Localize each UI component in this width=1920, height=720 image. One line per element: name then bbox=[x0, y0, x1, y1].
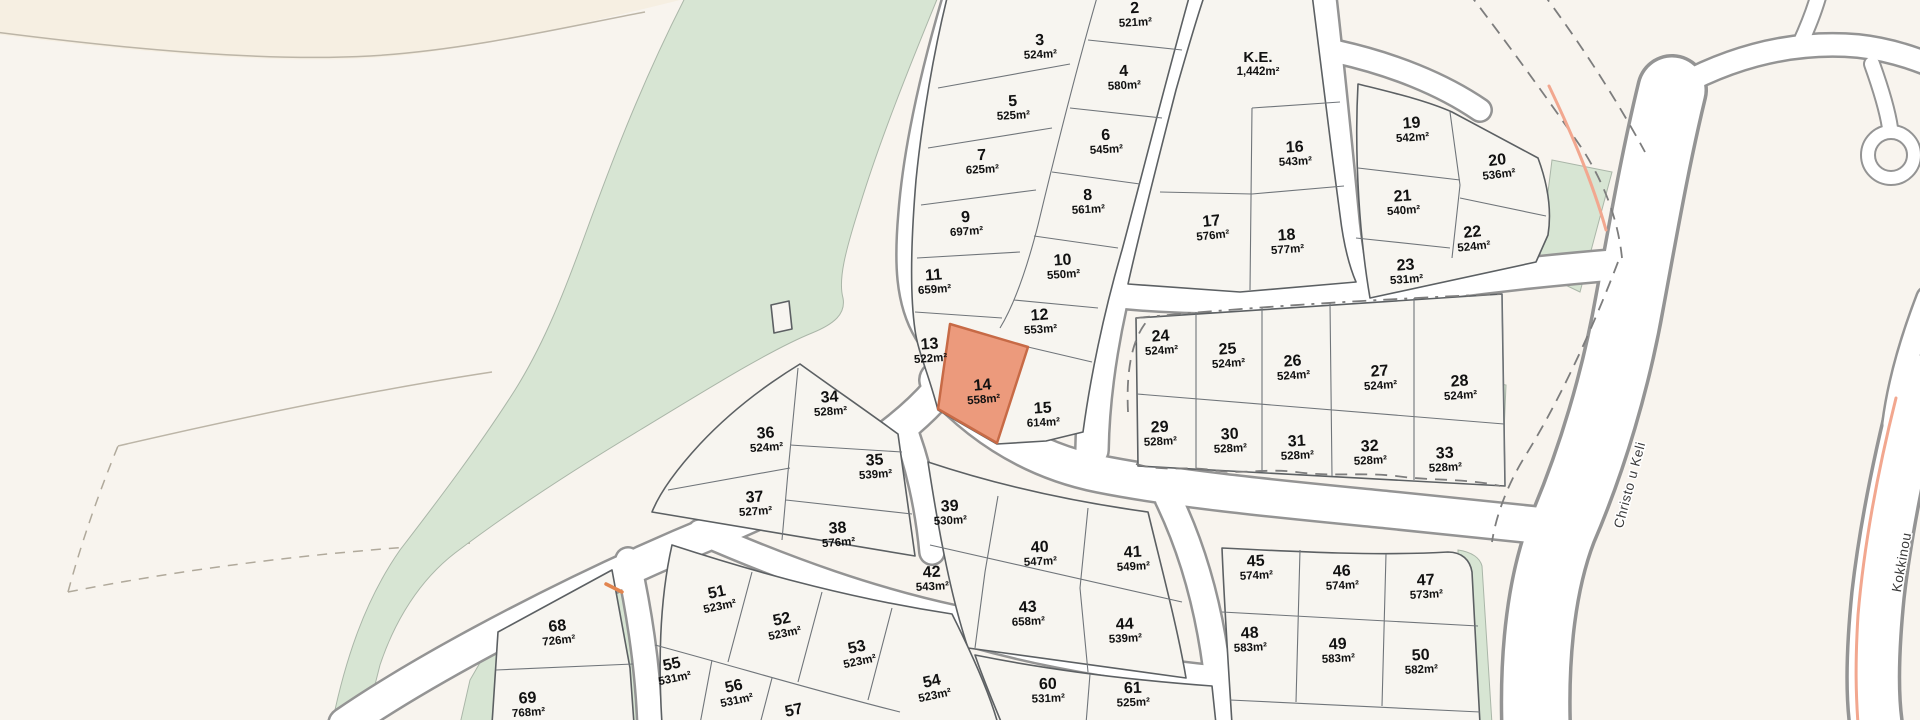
svg-text:15: 15 bbox=[1033, 400, 1052, 418]
svg-text:36: 36 bbox=[756, 424, 775, 442]
svg-text:44: 44 bbox=[1115, 616, 1134, 634]
svg-text:583m²: 583m² bbox=[1322, 652, 1356, 666]
svg-text:550m²: 550m² bbox=[1047, 268, 1081, 282]
svg-text:574m²: 574m² bbox=[1240, 569, 1274, 583]
svg-text:19: 19 bbox=[1402, 114, 1421, 132]
svg-text:524m²: 524m² bbox=[1444, 389, 1478, 403]
svg-text:60: 60 bbox=[1039, 676, 1057, 694]
svg-text:577m²: 577m² bbox=[1271, 243, 1305, 257]
svg-text:33: 33 bbox=[1435, 445, 1454, 463]
svg-text:41: 41 bbox=[1123, 544, 1142, 562]
svg-text:39: 39 bbox=[940, 498, 959, 516]
svg-text:31: 31 bbox=[1287, 433, 1306, 451]
svg-text:5: 5 bbox=[1008, 93, 1018, 110]
svg-text:30: 30 bbox=[1220, 426, 1239, 444]
svg-text:524m²: 524m² bbox=[750, 441, 784, 455]
svg-text:545m²: 545m² bbox=[1090, 143, 1124, 157]
svg-text:561m²: 561m² bbox=[1072, 203, 1106, 217]
parcel-map-svg[interactable]: 2521m²3524m²4580m²5525m²6545m²7625m²8561… bbox=[0, 0, 1920, 720]
svg-text:768m²: 768m² bbox=[512, 706, 546, 720]
svg-text:540m²: 540m² bbox=[1387, 204, 1421, 218]
svg-text:22: 22 bbox=[1463, 223, 1483, 242]
svg-text:16: 16 bbox=[1285, 139, 1304, 157]
svg-text:24: 24 bbox=[1151, 327, 1170, 345]
svg-text:18: 18 bbox=[1277, 226, 1296, 244]
svg-text:61: 61 bbox=[1124, 680, 1142, 698]
svg-text:57: 57 bbox=[783, 700, 804, 720]
parcel-label-57[interactable]: 57 bbox=[783, 700, 804, 720]
svg-text:32: 32 bbox=[1360, 438, 1379, 456]
svg-text:527m²: 527m² bbox=[739, 505, 773, 519]
svg-text:583m²: 583m² bbox=[1234, 641, 1268, 655]
svg-text:26: 26 bbox=[1283, 352, 1302, 370]
svg-text:K.E.: K.E. bbox=[1243, 49, 1272, 66]
svg-text:10: 10 bbox=[1053, 251, 1072, 269]
svg-text:6: 6 bbox=[1101, 127, 1111, 144]
svg-text:553m²: 553m² bbox=[1024, 323, 1058, 337]
svg-text:525m²: 525m² bbox=[997, 109, 1031, 123]
svg-text:12: 12 bbox=[1030, 306, 1049, 324]
svg-text:549m²: 549m² bbox=[1117, 560, 1151, 574]
svg-text:21: 21 bbox=[1393, 187, 1412, 205]
svg-text:573m²: 573m² bbox=[1410, 588, 1444, 602]
svg-text:530m²: 530m² bbox=[934, 514, 968, 528]
svg-text:528m²: 528m² bbox=[1354, 454, 1388, 468]
svg-text:531m²: 531m² bbox=[1390, 273, 1424, 287]
svg-text:38: 38 bbox=[828, 519, 847, 537]
svg-text:37: 37 bbox=[745, 488, 764, 506]
svg-text:14: 14 bbox=[973, 376, 992, 394]
svg-text:43: 43 bbox=[1018, 599, 1037, 617]
svg-text:48: 48 bbox=[1240, 625, 1259, 643]
svg-text:11: 11 bbox=[925, 266, 943, 284]
svg-text:659m²: 659m² bbox=[918, 283, 952, 297]
svg-text:50: 50 bbox=[1411, 647, 1430, 665]
svg-text:29: 29 bbox=[1150, 419, 1169, 437]
svg-text:522m²: 522m² bbox=[914, 352, 948, 366]
svg-text:34: 34 bbox=[820, 388, 839, 406]
svg-text:543m²: 543m² bbox=[1279, 155, 1313, 169]
svg-text:46: 46 bbox=[1332, 563, 1351, 581]
svg-text:697m²: 697m² bbox=[950, 225, 984, 239]
svg-text:524m²: 524m² bbox=[1212, 357, 1246, 371]
svg-text:47: 47 bbox=[1416, 572, 1435, 590]
svg-text:8: 8 bbox=[1083, 187, 1093, 204]
svg-text:539m²: 539m² bbox=[859, 468, 893, 482]
svg-text:658m²: 658m² bbox=[1012, 615, 1046, 629]
svg-text:531m²: 531m² bbox=[1031, 692, 1065, 705]
svg-text:614m²: 614m² bbox=[1027, 416, 1061, 430]
svg-text:547m²: 547m² bbox=[1024, 555, 1058, 569]
svg-text:539m²: 539m² bbox=[1109, 632, 1143, 646]
svg-text:25: 25 bbox=[1218, 340, 1237, 358]
svg-text:525m²: 525m² bbox=[1116, 696, 1150, 709]
svg-text:574m²: 574m² bbox=[1326, 579, 1360, 593]
svg-text:45: 45 bbox=[1246, 553, 1265, 571]
svg-text:17: 17 bbox=[1202, 212, 1222, 231]
svg-text:4: 4 bbox=[1119, 63, 1129, 80]
svg-text:528m²: 528m² bbox=[1214, 442, 1248, 456]
svg-text:13: 13 bbox=[920, 335, 939, 353]
svg-text:524m²: 524m² bbox=[1364, 379, 1398, 393]
svg-text:49: 49 bbox=[1328, 636, 1347, 654]
svg-text:69: 69 bbox=[518, 689, 537, 707]
utility-plot bbox=[771, 301, 792, 333]
svg-text:7: 7 bbox=[977, 147, 987, 164]
svg-text:1,442m²: 1,442m² bbox=[1237, 66, 1280, 78]
svg-text:528m²: 528m² bbox=[1281, 449, 1315, 463]
svg-text:524m²: 524m² bbox=[1145, 344, 1179, 358]
svg-text:28: 28 bbox=[1450, 372, 1469, 390]
svg-text:582m²: 582m² bbox=[1405, 663, 1439, 677]
svg-text:524m²: 524m² bbox=[1024, 48, 1058, 62]
svg-text:625m²: 625m² bbox=[966, 163, 1000, 177]
svg-text:40: 40 bbox=[1030, 539, 1049, 557]
svg-text:528m²: 528m² bbox=[1144, 435, 1178, 449]
svg-text:20: 20 bbox=[1487, 151, 1507, 170]
svg-text:9: 9 bbox=[961, 209, 971, 227]
map-canvas[interactable]: 2521m²3524m²4580m²5525m²6545m²7625m²8561… bbox=[0, 0, 1920, 720]
svg-text:528m²: 528m² bbox=[1429, 461, 1463, 475]
svg-text:27: 27 bbox=[1370, 362, 1389, 380]
svg-text:23: 23 bbox=[1396, 256, 1415, 274]
svg-text:521m²: 521m² bbox=[1119, 16, 1153, 30]
svg-text:580m²: 580m² bbox=[1108, 79, 1142, 93]
svg-text:42: 42 bbox=[922, 564, 941, 582]
svg-text:3: 3 bbox=[1035, 32, 1045, 49]
svg-text:68: 68 bbox=[548, 617, 568, 636]
svg-text:543m²: 543m² bbox=[916, 580, 950, 594]
svg-text:542m²: 542m² bbox=[1396, 131, 1430, 145]
svg-text:576m²: 576m² bbox=[822, 536, 856, 550]
svg-text:524m²: 524m² bbox=[1277, 369, 1311, 383]
svg-text:35: 35 bbox=[865, 451, 884, 469]
svg-text:528m²: 528m² bbox=[814, 405, 848, 419]
svg-text:2: 2 bbox=[1130, 0, 1140, 17]
